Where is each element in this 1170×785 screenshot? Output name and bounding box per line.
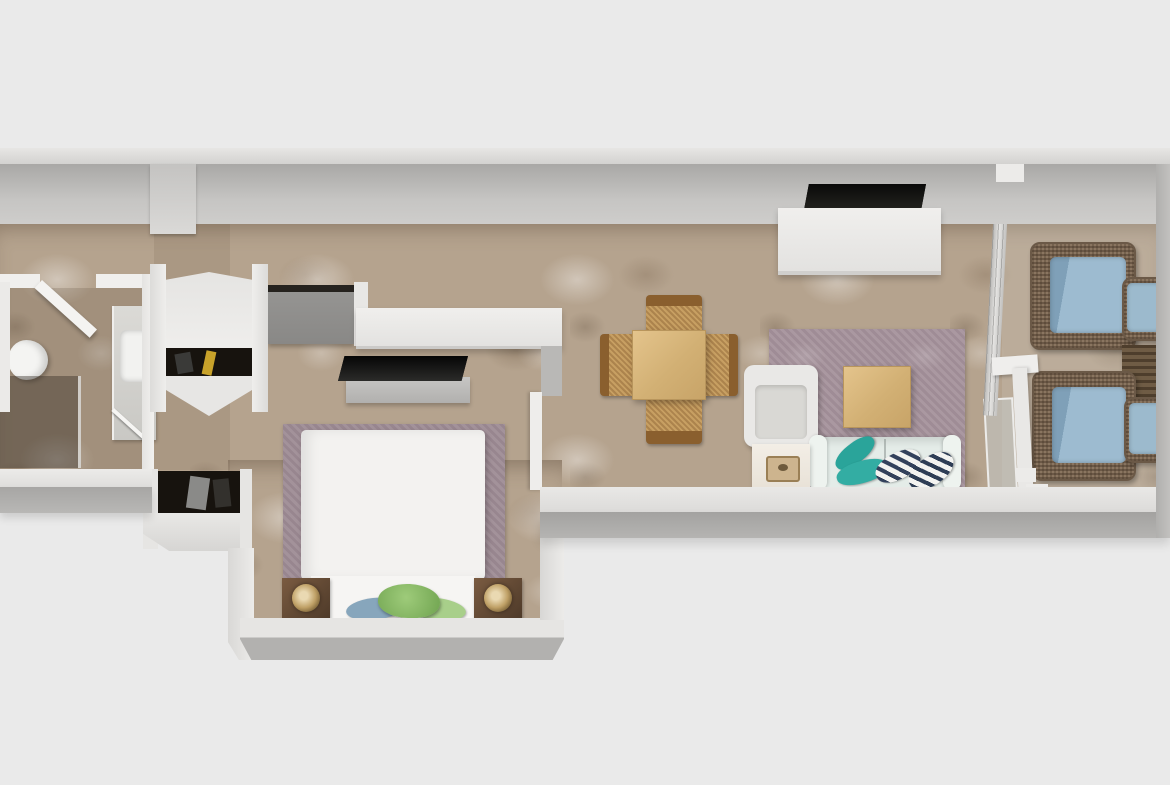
balcony-right-wall bbox=[1156, 164, 1170, 538]
apartment-floor-plan bbox=[0, 0, 1170, 785]
wardrobe-doors-upper bbox=[166, 272, 252, 350]
bedroom-partition-wall bbox=[530, 392, 542, 490]
living-bottom-wall-front bbox=[540, 512, 1170, 538]
sofa-cushion-seam bbox=[884, 439, 886, 459]
wardrobe-right-wall bbox=[252, 264, 268, 412]
bathroom-bottom-wall-front bbox=[0, 487, 152, 513]
desk-side-panel bbox=[541, 346, 562, 396]
sofa bbox=[812, 437, 958, 490]
bathroom-bottom-wall-top bbox=[0, 469, 152, 487]
decor-tray bbox=[766, 456, 800, 482]
armchair-seat bbox=[755, 385, 807, 439]
bedroom-bottom-wall bbox=[240, 618, 564, 660]
dining-chair-left bbox=[600, 334, 636, 396]
living-tv bbox=[804, 184, 926, 210]
living-bottom-wall-top bbox=[540, 487, 1170, 512]
top-wall-joint-pillar bbox=[150, 164, 196, 234]
lower-closet-bottom-wall bbox=[143, 513, 252, 551]
dining-chair-right bbox=[702, 334, 738, 396]
bedroom-tv bbox=[338, 356, 468, 381]
sofa-arm-left bbox=[809, 435, 827, 490]
top-wall-top-face bbox=[0, 148, 1170, 164]
railing-step-1 bbox=[1016, 468, 1036, 482]
wardrobe-interior bbox=[166, 348, 252, 378]
lower-closet-right-wall bbox=[240, 469, 252, 551]
wicker-armchair-bottom bbox=[1032, 371, 1136, 481]
folded-clothes-light bbox=[186, 476, 210, 510]
wicker-armchair-top bbox=[1030, 242, 1136, 350]
coffee-table bbox=[843, 366, 911, 428]
dining-chair-bottom bbox=[646, 396, 702, 444]
hanging-garment-yellow bbox=[202, 350, 217, 376]
sideboard bbox=[778, 208, 941, 275]
wardrobe-left-wall bbox=[150, 264, 166, 412]
hanging-garment-gray bbox=[174, 352, 193, 374]
bedroom-console-desk bbox=[356, 308, 562, 349]
bathroom-left-panel bbox=[0, 282, 10, 412]
lower-closet-interior bbox=[158, 471, 240, 515]
dining-table bbox=[632, 330, 706, 400]
bed-duvet bbox=[301, 430, 485, 580]
folded-clothes-dark bbox=[213, 478, 232, 508]
armchair bbox=[744, 365, 818, 447]
dining-chair-top bbox=[646, 295, 702, 335]
gray-cabinet-top bbox=[268, 292, 354, 344]
door-anchor-tab bbox=[996, 164, 1024, 182]
armchair-top-cushion bbox=[1050, 257, 1126, 333]
shower-glass-area bbox=[0, 376, 81, 468]
table-lamp-left bbox=[292, 584, 320, 612]
armchair-bottom-cushion bbox=[1052, 387, 1126, 463]
tray-bowl bbox=[778, 464, 788, 471]
table-lamp-right bbox=[484, 584, 512, 612]
